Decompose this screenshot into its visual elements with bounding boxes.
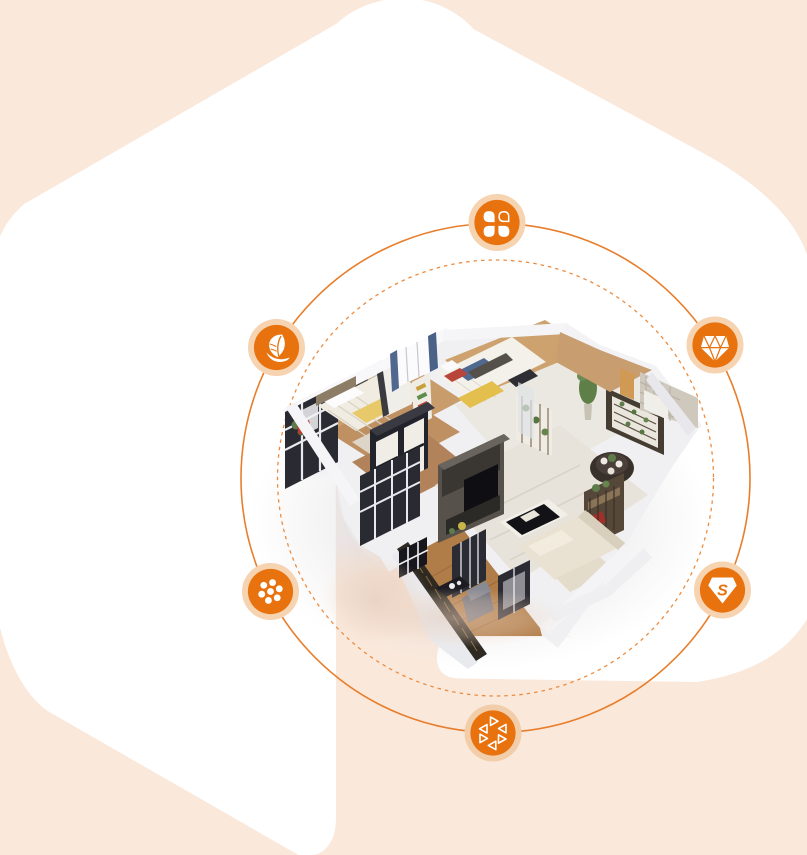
svg-text:S: S — [717, 583, 728, 600]
